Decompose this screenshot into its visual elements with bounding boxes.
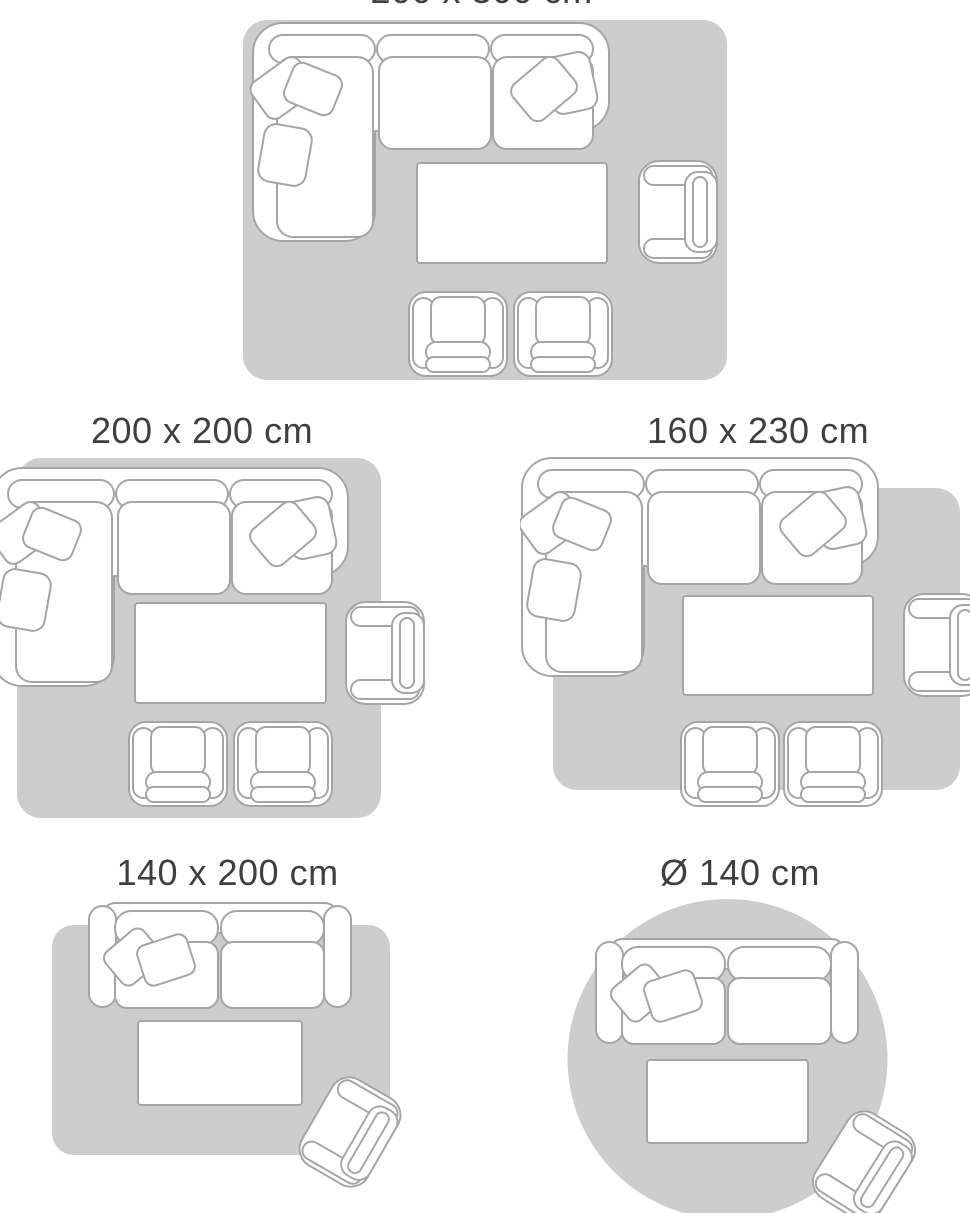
layout-scene-140x200: [30, 890, 450, 1213]
size-label-140x200: 140 x 200 cm: [30, 851, 425, 895]
size-label-d140: Ø 140 cm: [550, 851, 930, 895]
two-seat-sofa-illustration: [596, 939, 858, 1044]
coffee-table-illustration: [417, 163, 607, 263]
footstool-chair-illustration: [681, 722, 779, 806]
footstool-chair-illustration: [514, 292, 612, 376]
layout-scene-160x230: [520, 450, 970, 830]
armchair-illustration: [639, 161, 717, 263]
armchair-illustration: [346, 602, 424, 704]
coffee-table-illustration: [683, 596, 873, 695]
layout-scene-200x300: [233, 0, 743, 395]
coffee-table-illustration: [647, 1060, 808, 1143]
layout-scene-200x200: [0, 450, 440, 830]
footstool-chair-illustration: [784, 722, 882, 806]
coffee-table-illustration: [138, 1021, 302, 1105]
footstool-chair-illustration: [129, 722, 227, 806]
footstool-chair-illustration: [234, 722, 332, 806]
rug-size-guide: 200 x 300 cm 200 x 200 cm 160 x 230 cm 1…: [0, 0, 970, 1213]
size-label-200x200: 200 x 200 cm: [0, 409, 404, 453]
footstool-chair-illustration: [409, 292, 507, 376]
size-label-160x230: 160 x 230 cm: [530, 409, 970, 453]
layout-scene-d140: [550, 890, 970, 1213]
coffee-table-illustration: [135, 603, 326, 703]
armchair-illustration: [904, 594, 970, 696]
two-seat-sofa-illustration: [89, 903, 351, 1008]
